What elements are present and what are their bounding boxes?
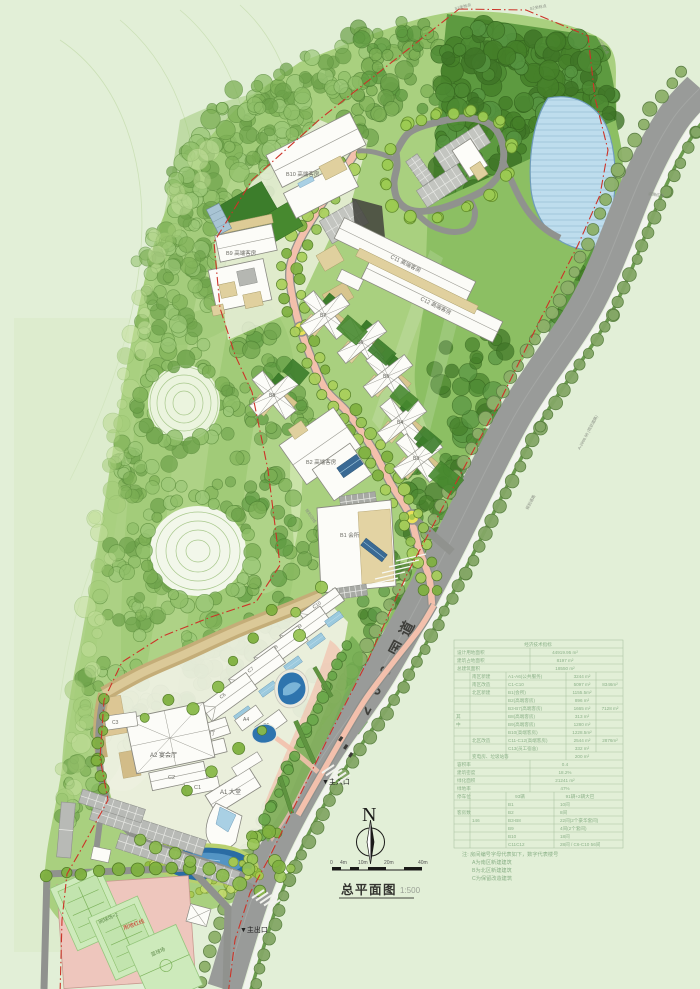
svg-text:总建筑面积: 总建筑面积 <box>457 665 480 672</box>
svg-text:A1-A6(公共服务): A1-A6(公共服务) <box>508 673 543 680</box>
svg-text:7128 m²: 7128 m² <box>602 706 619 711</box>
svg-text:经济技术指标: 经济技术指标 <box>524 641 552 648</box>
svg-text:44919.95 m²: 44919.95 m² <box>552 650 578 655</box>
svg-text:B3-B7(高端客房): B3-B7(高端客房) <box>508 705 543 712</box>
svg-text:北区改造: 北区改造 <box>472 737 491 744</box>
svg-text:B9(高端客房): B9(高端客房) <box>508 721 536 728</box>
svg-text:B3: B3 <box>413 456 419 462</box>
svg-text:总平面图: 总平面图 <box>341 882 397 897</box>
svg-text:南区新建: 南区新建 <box>472 673 491 680</box>
svg-text:A1 大堂: A1 大堂 <box>220 788 241 796</box>
svg-text:332 m²: 332 m² <box>575 746 590 751</box>
svg-text:B8(高端客房): B8(高端客房) <box>508 713 536 720</box>
svg-text:20m: 20m <box>384 860 394 866</box>
svg-text:40m: 40m <box>418 860 428 866</box>
svg-text:B1 会所: B1 会所 <box>340 531 360 539</box>
svg-text:4m: 4m <box>340 860 347 866</box>
svg-text:896 m²: 896 m² <box>575 698 590 703</box>
svg-text:C为保留改造建筑: C为保留改造建筑 <box>472 874 513 882</box>
svg-text:容积率: 容积率 <box>457 761 471 768</box>
svg-text:146: 146 <box>472 818 480 823</box>
svg-text:313 m²: 313 m² <box>575 714 590 719</box>
svg-text:注: 房间编号字母代表如下，数字代表楼号: 注: 房间编号字母代表如下，数字代表楼号 <box>462 850 558 858</box>
svg-text:B10(高端客房): B10(高端客房) <box>508 729 538 736</box>
svg-text:B2 高端客房: B2 高端客房 <box>306 458 337 466</box>
svg-text:93辆: 93辆 <box>515 793 525 800</box>
svg-text:4间(2个套间): 4间(2个套间) <box>560 825 587 832</box>
svg-text:B5: B5 <box>383 374 389 380</box>
svg-text:B9 高端客房: B9 高端客房 <box>226 249 257 257</box>
svg-text:1:500: 1:500 <box>400 886 421 895</box>
svg-text:8间: 8间 <box>560 809 568 816</box>
svg-text:停车位: 停车位 <box>457 793 471 800</box>
svg-text:5097 m²: 5097 m² <box>574 682 591 687</box>
svg-text:10m: 10m <box>358 860 368 866</box>
svg-text:北区新建: 北区新建 <box>472 689 491 696</box>
svg-text:10间: 10间 <box>560 801 570 808</box>
svg-text:8346m²: 8346m² <box>602 682 618 687</box>
svg-text:B3-B8: B3-B8 <box>508 818 521 823</box>
svg-text:1155.5m²: 1155.5m² <box>572 690 592 695</box>
svg-text:B9: B9 <box>508 826 514 831</box>
svg-text:1280 m²: 1280 m² <box>574 722 591 727</box>
svg-text:1665 m²: 1665 m² <box>574 706 591 711</box>
svg-text:中: 中 <box>456 721 461 728</box>
svg-text:C1-C10: C1-C10 <box>508 682 524 687</box>
svg-text:18间: 18间 <box>560 833 570 840</box>
svg-text:B1(会所): B1(会所) <box>508 689 526 696</box>
svg-text:客房数: 客房数 <box>457 809 471 816</box>
svg-text:建筑占地面积: 建筑占地面积 <box>457 657 485 664</box>
svg-text:绿地率: 绿地率 <box>457 785 471 792</box>
svg-text:B1: B1 <box>508 802 514 807</box>
svg-text:91辆+2辆大巴: 91辆+2辆大巴 <box>566 793 595 800</box>
svg-text:A为南区新建建筑: A为南区新建建筑 <box>472 858 513 866</box>
svg-text:C13(员工宿舍): C13(员工宿舍) <box>508 745 538 752</box>
svg-text:绿化面积: 绿化面积 <box>457 777 476 784</box>
svg-text:1228.5m²: 1228.5m² <box>572 730 592 735</box>
svg-text:N: N <box>362 804 376 826</box>
svg-text:28间 / C6-C10 56间: 28间 / C6-C10 56间 <box>560 841 601 848</box>
svg-text:南区改造: 南区改造 <box>472 681 491 688</box>
svg-text:B10 高端客房: B10 高端客房 <box>286 170 320 178</box>
svg-text:B2: B2 <box>508 810 514 815</box>
svg-text:A4: A4 <box>243 717 249 723</box>
svg-text:B4: B4 <box>397 420 403 426</box>
svg-text:▼主出口: ▼主出口 <box>240 925 268 934</box>
svg-text:B2(高端客房): B2(高端客房) <box>508 697 536 704</box>
svg-text:18550 m²: 18550 m² <box>555 666 575 671</box>
svg-text:8197 m²: 8197 m² <box>557 658 574 663</box>
svg-text:B8: B8 <box>269 393 275 399</box>
svg-text:21241 m²: 21241 m² <box>555 778 575 783</box>
svg-text:3244 m²: 3244 m² <box>574 674 591 679</box>
svg-text:2544 m²: 2544 m² <box>574 738 591 743</box>
svg-text:变电房、垃圾站等: 变电房、垃圾站等 <box>472 753 509 760</box>
svg-text:18.2%: 18.2% <box>558 770 571 775</box>
svg-text:C3: C3 <box>112 720 119 726</box>
svg-text:C1: C1 <box>194 785 201 791</box>
svg-text:200 m²: 200 m² <box>575 754 590 759</box>
svg-text:B7: B7 <box>320 313 326 319</box>
svg-text:0: 0 <box>330 860 333 866</box>
svg-text:47%: 47% <box>560 786 569 791</box>
svg-text:22间(2个豪华套间): 22间(2个豪华套间) <box>560 817 599 824</box>
svg-text:2876m²: 2876m² <box>602 738 618 743</box>
svg-text:C2: C2 <box>168 775 175 781</box>
svg-text:B为北区新建建筑: B为北区新建建筑 <box>472 866 513 874</box>
svg-text:设计用地面积: 设计用地面积 <box>457 649 485 656</box>
svg-text:C11C12: C11C12 <box>508 842 525 847</box>
svg-text:0.4: 0.4 <box>562 762 569 767</box>
svg-text:B10: B10 <box>508 834 517 839</box>
svg-text:A2 宴会厅: A2 宴会厅 <box>150 751 177 759</box>
svg-text:C11-C12(高端客房): C11-C12(高端客房) <box>508 737 548 744</box>
svg-text:建筑密度: 建筑密度 <box>457 769 476 776</box>
